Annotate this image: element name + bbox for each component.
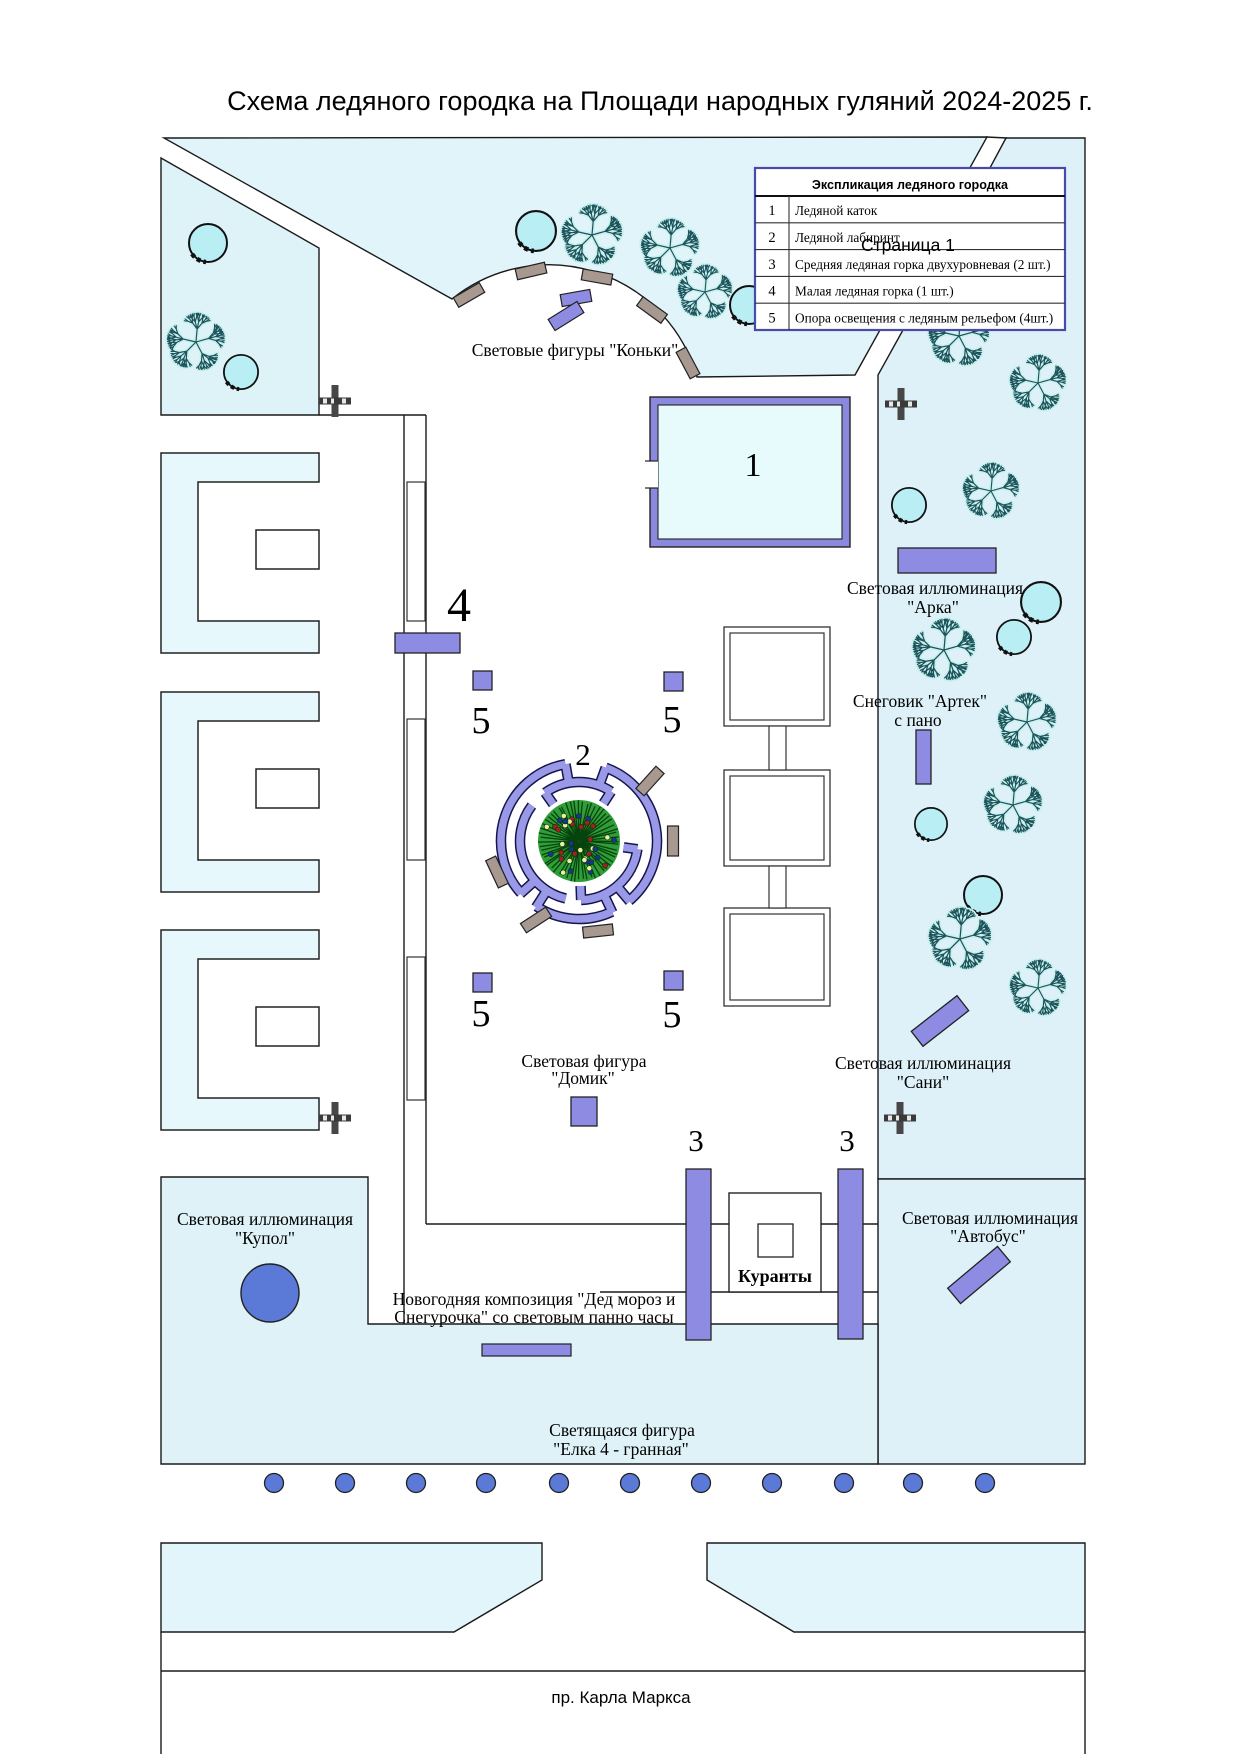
svg-text:3: 3 — [688, 1123, 704, 1158]
svg-text:с пано: с пано — [894, 710, 942, 730]
svg-text:Страница 1: Страница 1 — [861, 235, 955, 255]
svg-text:Малая ледяная горка (1 шт.): Малая ледяная горка (1 шт.) — [795, 284, 954, 299]
svg-text:Схема ледяного городка на Площ: Схема ледяного городка на Площади народн… — [227, 86, 1093, 116]
svg-text:Средняя ледяная горка двухуров: Средняя ледяная горка двухуровневая (2 ш… — [795, 257, 1051, 272]
svg-text:3: 3 — [768, 257, 775, 273]
svg-text:3: 3 — [839, 1123, 855, 1158]
svg-text:Световая иллюминация: Световая иллюминация — [847, 578, 1023, 598]
svg-text:5: 5 — [663, 699, 682, 741]
svg-text:Световая иллюминация: Световая иллюминация — [902, 1208, 1078, 1228]
svg-text:пр. Карла Маркса: пр. Карла Маркса — [551, 1688, 691, 1707]
svg-text:Экспликация ледяного городка: Экспликация ледяного городка — [812, 178, 1009, 192]
svg-text:Куранты: Куранты — [738, 1266, 812, 1286]
svg-text:4: 4 — [447, 579, 471, 632]
svg-text:"Купол": "Купол" — [235, 1228, 295, 1248]
svg-text:Световая иллюминация: Световая иллюминация — [835, 1053, 1011, 1073]
svg-text:"Арка": "Арка" — [907, 597, 959, 617]
svg-text:"Сани": "Сани" — [897, 1072, 949, 1092]
svg-text:5: 5 — [663, 994, 682, 1036]
svg-text:"Автобус": "Автобус" — [950, 1226, 1026, 1246]
svg-text:5: 5 — [768, 310, 775, 326]
svg-text:Световые фигуры "Коньки": Световые фигуры "Коньки" — [472, 340, 679, 360]
svg-text:Снегурочка" со световым панно: Снегурочка" со световым панно часы — [394, 1307, 674, 1327]
svg-text:5: 5 — [472, 993, 491, 1035]
svg-text:"Елка 4 - гранная": "Елка 4 - гранная" — [553, 1439, 689, 1459]
svg-text:1: 1 — [768, 203, 775, 219]
svg-text:"Домик": "Домик" — [551, 1068, 615, 1088]
svg-text:4: 4 — [768, 284, 776, 300]
svg-text:Световая иллюминация: Световая иллюминация — [177, 1209, 353, 1229]
svg-text:1: 1 — [745, 447, 762, 484]
svg-text:Светящаяся фигура: Светящаяся фигура — [549, 1420, 695, 1440]
svg-text:2: 2 — [575, 737, 591, 772]
svg-text:Новогодняя композиция "Дед мор: Новогодняя композиция "Дед мороз и — [393, 1289, 676, 1309]
svg-text:Опора освещения с ледяным рель: Опора освещения с ледяным рельефом (4шт.… — [795, 310, 1053, 325]
svg-text:Ледяной каток: Ледяной каток — [795, 203, 878, 218]
svg-text:2: 2 — [768, 230, 775, 246]
svg-text:Снеговик "Артек": Снеговик "Артек" — [853, 691, 987, 711]
svg-text:5: 5 — [472, 700, 491, 742]
